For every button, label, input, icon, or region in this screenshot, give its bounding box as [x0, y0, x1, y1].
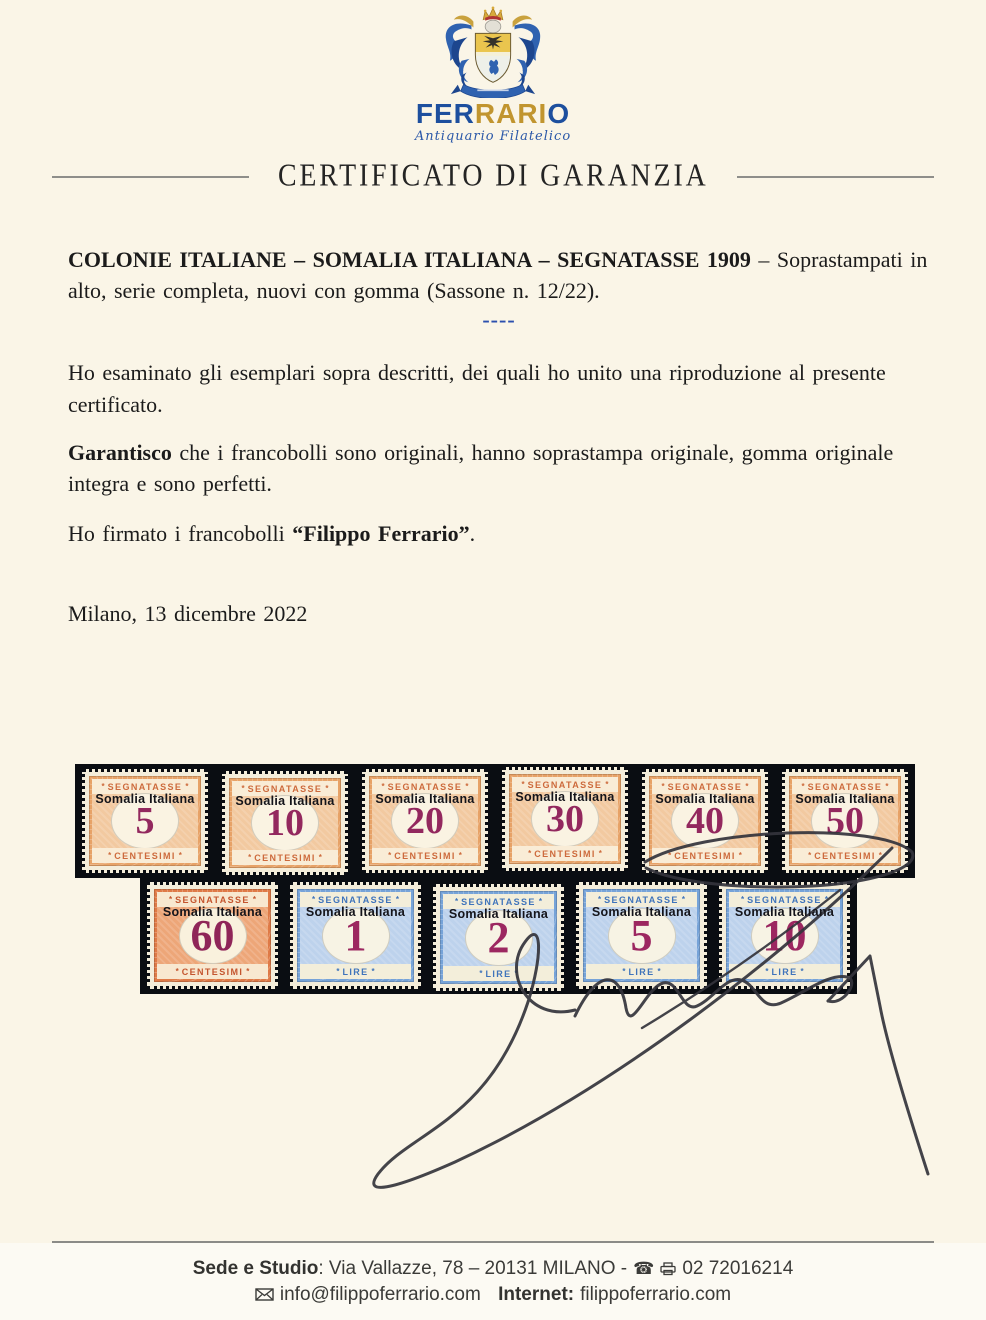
- stamp-bottom-label: CENTESIMI: [182, 967, 244, 977]
- stamp: *SEGNATASSE* 60 *CENTESIMI* Somalia Ital…: [147, 882, 278, 989]
- title-rule-right: [737, 176, 934, 178]
- examined-paragraph: Ho esaminato gli esemplari sopra descrit…: [68, 357, 930, 419]
- rosette-ornament-icon: *: [372, 967, 375, 976]
- rosette-ornament-icon: *: [185, 782, 188, 791]
- stamp-art: *SEGNATASSE* 10 *CENTESIMI* Somalia Ital…: [229, 778, 341, 868]
- rosette-ornament-icon: *: [682, 895, 685, 904]
- rosette-ornament-icon: *: [382, 782, 385, 791]
- signed-name-bold: “Filippo Ferrario”: [292, 521, 469, 546]
- rosette-ornament-icon: *: [745, 782, 748, 791]
- stamp-overprint: Somalia Italiana: [369, 792, 481, 806]
- rosette-ornament-icon: *: [455, 897, 458, 906]
- stamp-overprint: Somalia Italiana: [89, 792, 201, 806]
- stamp-block: *SEGNATASSE* 5 *CENTESIMI* Somalia Itali…: [0, 760, 986, 1180]
- stamp-top-label: SEGNATASSE: [461, 897, 536, 907]
- brand-subtitle: Antiquario Filatelico: [0, 129, 986, 144]
- footer-address-bold: Sede e Studio: [193, 1258, 319, 1279]
- dateline: Milano, 13 dicembre 2022: [68, 598, 930, 629]
- rosette-ornament-icon: *: [598, 895, 601, 904]
- stamp-art: *SEGNATASSE* 50 *CENTESIMI* Somalia Ital…: [789, 776, 901, 866]
- rosette-ornament-icon: *: [825, 895, 828, 904]
- rosette-ornament-icon: *: [522, 780, 525, 789]
- stamp-bottom-band: *LIRE*: [300, 964, 411, 979]
- rosette-ornament-icon: *: [169, 895, 172, 904]
- rosette-ornament-icon: *: [246, 967, 249, 976]
- stamp-bottom-band: *CENTESIMI*: [232, 850, 338, 865]
- brand-part-3: O: [547, 98, 570, 129]
- rosette-ornament-icon: *: [102, 782, 105, 791]
- stamp-top-label: SEGNATASSE: [528, 780, 603, 790]
- rosette-ornament-icon: *: [662, 782, 665, 791]
- footer-website: filippoferrario.com: [580, 1284, 731, 1306]
- rosette-ornament-icon: *: [242, 784, 245, 793]
- stamp: *SEGNATASSE* 2 *LIRE* Somalia Italiana: [433, 884, 564, 991]
- certificate-header: FERRARIO Antiquario Filatelico: [0, 4, 986, 144]
- rosette-ornament-icon: *: [179, 851, 182, 860]
- stamp-overprint: Somalia Italiana: [154, 905, 271, 919]
- rosette-ornament-icon: *: [336, 967, 339, 976]
- rosette-ornament-icon: *: [325, 784, 328, 793]
- stamp: *SEGNATASSE* 1 *LIRE* Somalia Italiana: [290, 882, 421, 989]
- stamp-bottom-label: CENTESIMI: [674, 851, 736, 861]
- stamp-art: *SEGNATASSE* 60 *CENTESIMI* Somalia Ital…: [154, 889, 271, 982]
- rosette-ornament-icon: *: [248, 853, 251, 862]
- stamp-art: *SEGNATASSE* 30 *CENTESIMI* Somalia Ital…: [509, 774, 621, 864]
- rosette-ornament-icon: *: [388, 851, 391, 860]
- footer-contact-line: info@filippoferrario.com Internet: filip…: [255, 1284, 731, 1306]
- rosette-ornament-icon: *: [808, 851, 811, 860]
- stamp-top-label: SEGNATASSE: [604, 895, 679, 905]
- rosette-ornament-icon: *: [658, 967, 661, 976]
- stamp-overprint: Somalia Italiana: [297, 905, 414, 919]
- stamp-value: 20: [406, 802, 444, 840]
- stamp-row-1: *SEGNATASSE* 5 *CENTESIMI* Somalia Itali…: [75, 764, 915, 878]
- rosette-ornament-icon: *: [539, 897, 542, 906]
- stamp-art: *SEGNATASSE* 5 *LIRE* Somalia Italiana: [583, 889, 700, 982]
- stamp: *SEGNATASSE* 5 *LIRE* Somalia Italiana: [576, 882, 707, 989]
- stamp-top-label: SEGNATASSE: [388, 782, 463, 792]
- stamp-bottom-label: CENTESIMI: [814, 851, 876, 861]
- phone-icon: ☎: [633, 1260, 654, 1277]
- footer-phone-number: 02 72016214: [682, 1258, 793, 1280]
- footer-address-line: Sede e Studio: Via Vallazze, 78 – 20131 …: [193, 1258, 794, 1280]
- description-paragraph: COLONIE ITALIANE – SOMALIA ITALIANA – SE…: [68, 244, 930, 306]
- stamp-bottom-label: CENTESIMI: [534, 849, 596, 859]
- stamp-bottom-label: LIRE: [342, 967, 368, 977]
- stamp-top-label: SEGNATASSE: [108, 782, 183, 792]
- rosette-ornament-icon: *: [528, 849, 531, 858]
- stamp-bottom-label: CENTESIMI: [114, 851, 176, 861]
- signed-paragraph: Ho firmato i francobolli “Filippo Ferrar…: [68, 518, 930, 549]
- guarantee-rest: che i francobolli sono originali, hanno …: [68, 440, 893, 496]
- rosette-ornament-icon: *: [879, 851, 882, 860]
- stamp-value: 60: [191, 914, 235, 958]
- guarantee-bold: Garantisco: [68, 440, 172, 465]
- certificate-body: COLONIE ITALIANE – SOMALIA ITALIANA – SE…: [68, 244, 930, 630]
- stamp-bottom-band: *LIRE*: [729, 964, 840, 979]
- rosette-ornament-icon: *: [479, 969, 482, 978]
- stamp: *SEGNATASSE* 30 *CENTESIMI* Somalia Ital…: [502, 767, 628, 871]
- stamp: *SEGNATASSE* 10 *CENTESIMI* Somalia Ital…: [222, 771, 348, 875]
- stamp-value: 5: [136, 802, 155, 840]
- stamp-top-label: SEGNATASSE: [808, 782, 883, 792]
- signed-prefix: Ho firmato i francobolli: [68, 521, 292, 546]
- stamp-bottom-band: *LIRE*: [586, 964, 697, 979]
- rosette-ornament-icon: *: [319, 853, 322, 862]
- stamp-overprint: Somalia Italiana: [440, 907, 557, 921]
- brand-part-1: FER: [416, 98, 475, 129]
- rosette-ornament-icon: *: [605, 780, 608, 789]
- fax-icon: [660, 1262, 676, 1276]
- brand-wordmark: FERRARIO: [0, 100, 986, 128]
- rosette-ornament-icon: *: [312, 895, 315, 904]
- title-rule-left: [52, 176, 249, 178]
- rosette-ornament-icon: *: [459, 851, 462, 860]
- footer: Sede e Studio: Via Vallazze, 78 – 20131 …: [0, 1243, 986, 1320]
- rosette-ornament-icon: *: [176, 967, 179, 976]
- stamp-row-2: *SEGNATASSE* 60 *CENTESIMI* Somalia Ital…: [140, 877, 857, 994]
- blue-dash-divider: ----: [68, 310, 930, 330]
- certificate-title: CERTIFICATO DI GARANZIA: [278, 159, 709, 195]
- stamp-art: *SEGNATASSE* 10 *LIRE* Somalia Italiana: [726, 889, 843, 982]
- rosette-ornament-icon: *: [515, 969, 518, 978]
- rosette-ornament-icon: *: [599, 849, 602, 858]
- stamp-bottom-label: LIRE: [628, 967, 654, 977]
- stamp-art: *SEGNATASSE* 1 *LIRE* Somalia Italiana: [297, 889, 414, 982]
- stamp-bottom-band: *CENTESIMI*: [157, 964, 268, 979]
- rosette-ornament-icon: *: [253, 895, 256, 904]
- footer-internet-label: Internet:: [498, 1284, 574, 1306]
- footer-address-rest: : Via Vallazze, 78 – 20131 MILANO -: [318, 1258, 627, 1279]
- stamp-overprint: Somalia Italiana: [583, 905, 700, 919]
- stamp-value: 40: [686, 802, 724, 840]
- stamp-bottom-band: *CENTESIMI*: [512, 846, 618, 861]
- stamp-bottom-label: CENTESIMI: [254, 853, 316, 863]
- envelope-icon: [255, 1288, 274, 1301]
- stamp-top-label: SEGNATASSE: [248, 784, 323, 794]
- stamp-bottom-band: *CENTESIMI*: [792, 848, 898, 863]
- stamp-overprint: Somalia Italiana: [509, 790, 621, 804]
- stamp-overprint: Somalia Italiana: [726, 905, 843, 919]
- stamp-bottom-label: CENTESIMI: [394, 851, 456, 861]
- stamp-bottom-label: LIRE: [771, 967, 797, 977]
- stamp-overprint: Somalia Italiana: [789, 792, 901, 806]
- stamp-bottom-band: *LIRE*: [443, 966, 554, 981]
- guarantee-paragraph: Garantisco che i francobolli sono origin…: [68, 437, 930, 499]
- stamp-value: 10: [763, 914, 807, 958]
- stamp-value: 2: [488, 916, 510, 960]
- stamp-bottom-band: *CENTESIMI*: [92, 848, 198, 863]
- stamp-bottom-band: *CENTESIMI*: [652, 848, 758, 863]
- footer-email: info@filippoferrario.com: [280, 1284, 481, 1306]
- rosette-ornament-icon: *: [801, 967, 804, 976]
- title-row: CERTIFICATO DI GARANZIA: [52, 160, 934, 193]
- rosette-ornament-icon: *: [622, 967, 625, 976]
- rosette-ornament-icon: *: [739, 851, 742, 860]
- rosette-ornament-icon: *: [465, 782, 468, 791]
- stamp-bottom-label: LIRE: [485, 969, 511, 979]
- rosette-ornament-icon: *: [765, 967, 768, 976]
- stamp: *SEGNATASSE* 5 *CENTESIMI* Somalia Itali…: [82, 769, 208, 873]
- rosette-ornament-icon: *: [741, 895, 744, 904]
- stamp-overprint: Somalia Italiana: [649, 792, 761, 806]
- stamp: *SEGNATASSE* 50 *CENTESIMI* Somalia Ital…: [782, 769, 908, 873]
- stamp-value: 50: [826, 802, 864, 840]
- stamp: *SEGNATASSE* 40 *CENTESIMI* Somalia Ital…: [642, 769, 768, 873]
- stamp-top-label: SEGNATASSE: [318, 895, 393, 905]
- stamp-top-label: SEGNATASSE: [668, 782, 743, 792]
- stamp-bottom-band: *CENTESIMI*: [372, 848, 478, 863]
- stamp-art: *SEGNATASSE* 40 *CENTESIMI* Somalia Ital…: [649, 776, 761, 866]
- rosette-ornament-icon: *: [396, 895, 399, 904]
- stamp: *SEGNATASSE* 10 *LIRE* Somalia Italiana: [719, 882, 850, 989]
- signed-suffix: .: [470, 521, 476, 546]
- stamp: *SEGNATASSE* 20 *CENTESIMI* Somalia Ital…: [362, 769, 488, 873]
- stamp-value: 30: [546, 800, 584, 838]
- ferrario-crest-logo: [434, 4, 552, 98]
- stamp-top-label: SEGNATASSE: [747, 895, 822, 905]
- stamp-value: 5: [631, 914, 653, 958]
- rosette-ornament-icon: *: [802, 782, 805, 791]
- stamp-art: *SEGNATASSE* 5 *CENTESIMI* Somalia Itali…: [89, 776, 201, 866]
- stamp-art: *SEGNATASSE* 2 *LIRE* Somalia Italiana: [440, 891, 557, 984]
- stamp-value: 1: [345, 914, 367, 958]
- stamp-value: 10: [266, 804, 304, 842]
- stamp-art: *SEGNATASSE* 20 *CENTESIMI* Somalia Ital…: [369, 776, 481, 866]
- description-bold: COLONIE ITALIANE – SOMALIA ITALIANA – SE…: [68, 247, 751, 272]
- rosette-ornament-icon: *: [885, 782, 888, 791]
- stamp-top-label: SEGNATASSE: [175, 895, 250, 905]
- rosette-ornament-icon: *: [668, 851, 671, 860]
- rosette-ornament-icon: *: [108, 851, 111, 860]
- brand-part-2: RARI: [475, 98, 547, 129]
- stamp-overprint: Somalia Italiana: [229, 794, 341, 808]
